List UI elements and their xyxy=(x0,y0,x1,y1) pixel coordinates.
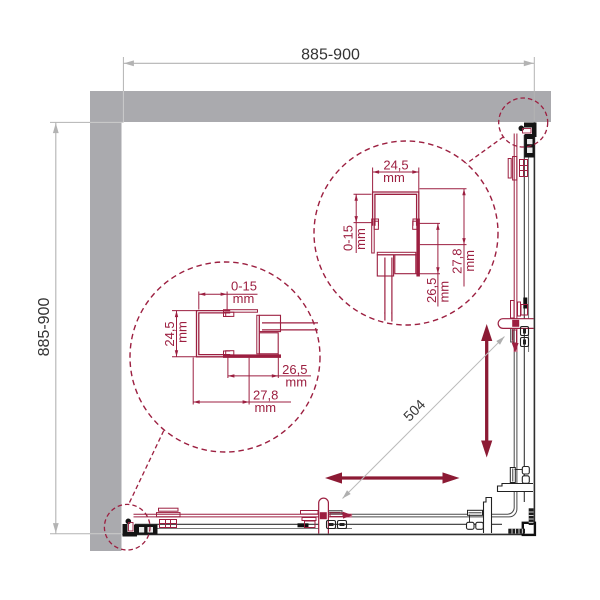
svg-text:mm: mm xyxy=(175,321,190,343)
svg-text:885-900: 885-900 xyxy=(36,298,53,357)
svg-text:mm: mm xyxy=(254,400,276,415)
svg-text:mm: mm xyxy=(233,291,255,306)
svg-text:mm: mm xyxy=(285,374,307,389)
svg-text:mm: mm xyxy=(353,228,368,250)
svg-text:mm: mm xyxy=(436,281,451,303)
svg-text:885-900: 885-900 xyxy=(301,47,360,64)
svg-text:mm: mm xyxy=(462,250,477,272)
svg-text:mm: mm xyxy=(383,170,405,185)
